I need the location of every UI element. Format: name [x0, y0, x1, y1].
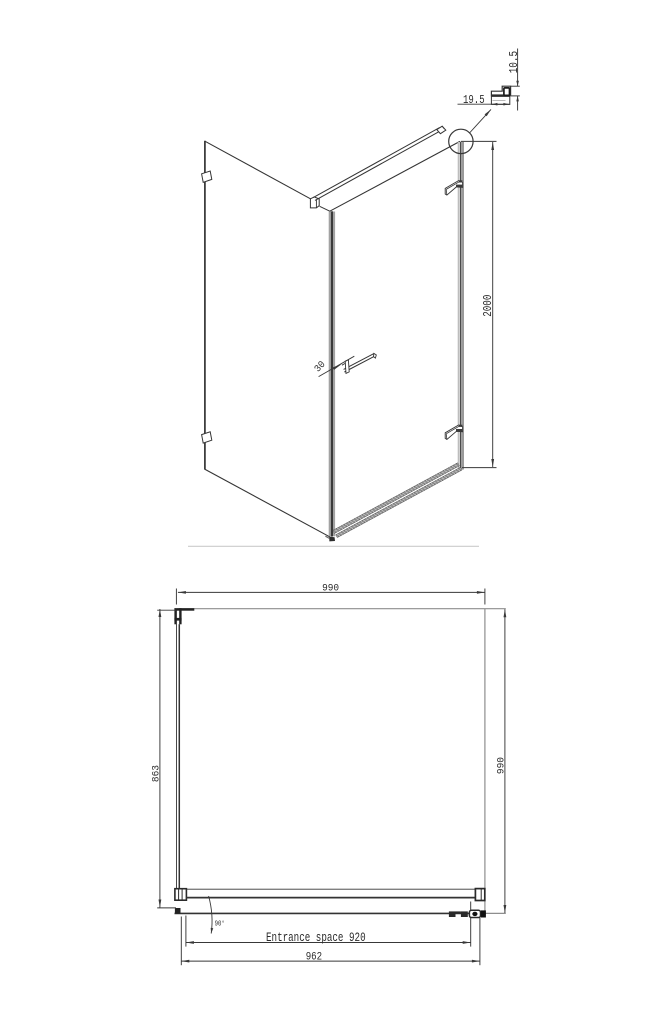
svg-text:990: 990	[495, 757, 507, 774]
svg-text:863: 863	[150, 765, 162, 782]
svg-text:30: 30	[312, 359, 328, 375]
svg-text:962: 962	[306, 952, 322, 964]
svg-text:2000: 2000	[481, 295, 495, 317]
svg-text:90°: 90°	[215, 920, 225, 929]
svg-text:Entrance space 920: Entrance space 920	[266, 930, 366, 945]
svg-text:19.5: 19.5	[463, 93, 485, 107]
svg-text:10.5: 10.5	[507, 51, 521, 73]
svg-text:990: 990	[322, 582, 339, 594]
